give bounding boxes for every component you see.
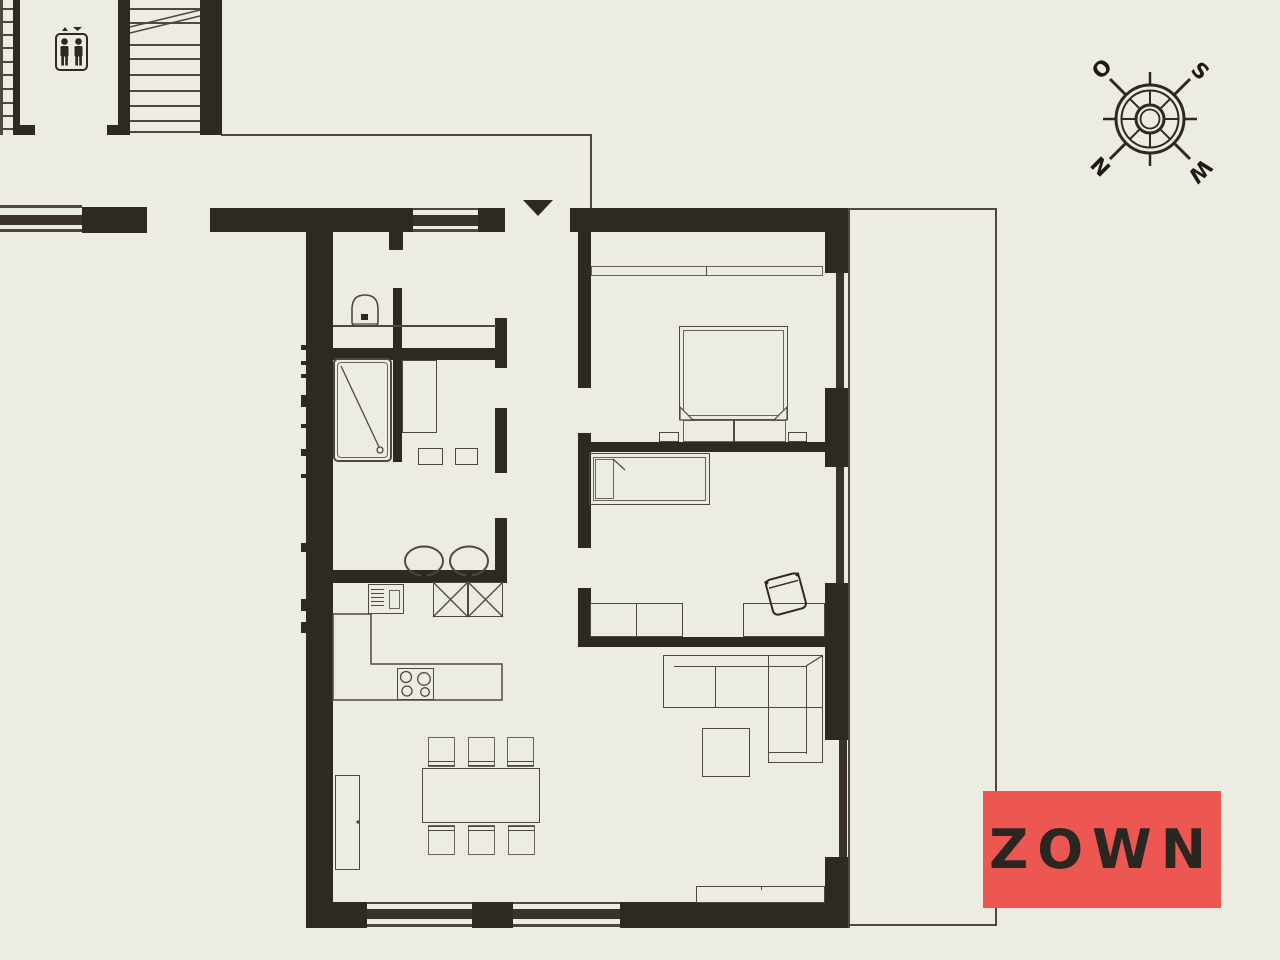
dining-chair-back [428,826,455,831]
window-glazing-bottom [513,909,620,919]
window-glazing-bottom [367,909,472,919]
sofa-chaise-end-line [769,752,806,753]
window-line [513,902,620,904]
window-line [367,924,472,927]
dining-chair-back [468,761,495,766]
floor-plan-canvas: O S N W ZOWN [0,0,1280,960]
desk-chair-pot [0,0,900,660]
window-line [513,924,620,927]
dining-table [422,768,540,823]
dining-chair-back [468,826,495,831]
exterior-wall-bottom [306,902,367,928]
exterior-wall-bottom [620,902,850,928]
sideboard-divider-tick [761,886,762,890]
window-line [367,902,472,904]
compass-rose: O S N W [1080,49,1225,194]
zown-logo: ZOWN [983,791,1221,908]
terrace-outline-bottom [850,924,997,926]
dining-chair-back [507,761,534,766]
exterior-wall-bottom [472,902,513,928]
window-glazing-right [839,740,847,857]
coffee-table [702,728,750,777]
zown-logo-text: ZOWN [989,818,1215,881]
exterior-wall-right-pillar [825,857,850,928]
dining-chair-back [508,826,535,831]
dining-chair-back [428,761,455,766]
